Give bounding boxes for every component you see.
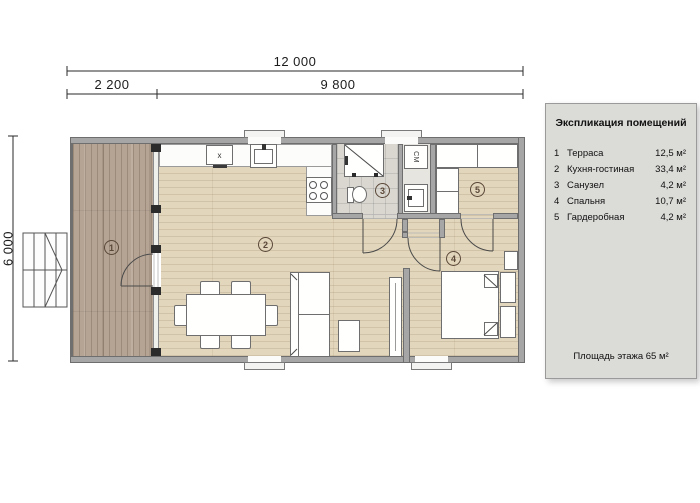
dim-total-width: 12 000: [260, 54, 330, 69]
toilet-bowl: [352, 186, 367, 203]
dim-house-width: 9 800: [303, 77, 373, 92]
bedside-panel: [500, 306, 516, 338]
room-label-bedroom: 4: [446, 251, 461, 266]
legend-row-name: Санузел: [567, 180, 660, 191]
dim-depth: 6 000: [1, 219, 16, 279]
legend-row: 1 Терраса 12,5 м²: [546, 145, 696, 161]
window-gap: [248, 137, 281, 144]
wall-door-jamb-left: [402, 232, 408, 238]
glazing-post: [151, 287, 161, 295]
terrace-edge-rail: [70, 144, 73, 356]
terrace-door-gap: [152, 253, 161, 287]
side-table: [338, 320, 360, 352]
legend-row-num: 2: [554, 164, 567, 175]
legend-row-area: 10,7 м²: [655, 196, 686, 207]
sofa-cushion-line: [298, 314, 330, 315]
nightstand: [504, 251, 518, 270]
legend-footer: Площадь этажа 65 м²: [546, 351, 696, 362]
room-label-terrace: 1: [104, 240, 119, 255]
stove-burner: [309, 192, 317, 200]
outer-wall-top: [70, 137, 525, 144]
legend-row-num: 1: [554, 148, 567, 159]
appliance-handle: [213, 165, 227, 168]
entry-steps: [23, 233, 67, 307]
tv-cabinet-line: [395, 283, 396, 351]
room-label-wardrobe: 5: [470, 182, 485, 197]
legend-row-area: 12,5 м²: [655, 148, 686, 159]
legend-row-name: Гардеробная: [567, 212, 660, 223]
wall-kitchen-bath: [332, 144, 337, 219]
wardrobe-divider: [477, 144, 478, 168]
legend-rows: 1 Терраса 12,5 м² 2 Кухня-гостиная 33,4 …: [546, 145, 696, 226]
kitchen-appliance-label: x: [206, 145, 233, 165]
legend-row: 5 Гардеробная 4,2 м²: [546, 210, 696, 226]
kitchen-counter-top: [159, 144, 332, 167]
window-bottom-bedroom: [411, 362, 452, 370]
pillow: [484, 274, 498, 288]
washbasin-faucet: [407, 196, 412, 200]
room-label-kitchen-living: 2: [258, 237, 273, 252]
stove-burner: [320, 181, 328, 189]
legend-row-name: Кухня-гостиная: [567, 164, 655, 175]
wall-stub-hinge: [439, 219, 445, 238]
legend-row-area: 33,4 м²: [655, 164, 686, 175]
outer-wall-bottom: [70, 356, 525, 363]
dim-terrace-width: 2 200: [77, 77, 147, 92]
legend-row: 3 Санузел 4,2 м²: [546, 177, 696, 193]
legend-row: 4 Спальня 10,7 м²: [546, 194, 696, 210]
wardrobe-unit-left: [436, 168, 459, 216]
wall-stub-left: [402, 219, 408, 232]
legend-row-area: 4,2 м²: [660, 180, 686, 191]
wall-bedroom-left: [403, 268, 410, 363]
wall-bath-niche: [398, 144, 403, 219]
wall-niche-wardrobe: [430, 144, 436, 219]
legend-row: 2 Кухня-гостиная 33,4 м²: [546, 161, 696, 177]
legend-row-num: 4: [554, 196, 567, 207]
window-gap: [385, 137, 418, 144]
shower-fixture: [345, 156, 348, 165]
wall-hall-c: [493, 213, 518, 219]
stove-burner: [309, 181, 317, 189]
bedside-panel: [500, 272, 516, 303]
legend-row-area: 4,2 м²: [660, 212, 686, 223]
wardrobe-shelf-line: [436, 191, 459, 192]
sink-basin: [254, 149, 273, 164]
glazing-post: [151, 348, 161, 356]
glazing-post: [151, 205, 161, 213]
wall-hall-a: [332, 213, 363, 219]
legend-row-num: 5: [554, 212, 567, 223]
shower-jamb: [352, 173, 356, 177]
legend-title: Экспликация помещений: [546, 117, 696, 129]
outer-wall-right: [518, 137, 525, 363]
dining-table: [186, 294, 266, 336]
legend-row-name: Терраса: [567, 148, 655, 159]
pillow: [484, 322, 498, 336]
legend-panel: Экспликация помещений 1 Терраса 12,5 м² …: [545, 103, 697, 379]
glazing-post: [151, 144, 161, 152]
stove-burner: [320, 192, 328, 200]
shower: [344, 144, 384, 177]
washing-machine-label: СМ: [404, 145, 428, 169]
legend-row-name: Спальня: [567, 196, 655, 207]
sink-faucet: [262, 144, 266, 150]
floor-plan-canvas: 12 000 2 200 9 800 6 000 x СМ: [0, 0, 700, 503]
window-bottom-living: [244, 362, 285, 370]
glazing-post: [151, 245, 161, 253]
shower-jamb: [374, 173, 378, 177]
room-label-bathroom: 3: [375, 183, 390, 198]
legend-row-num: 3: [554, 180, 567, 191]
